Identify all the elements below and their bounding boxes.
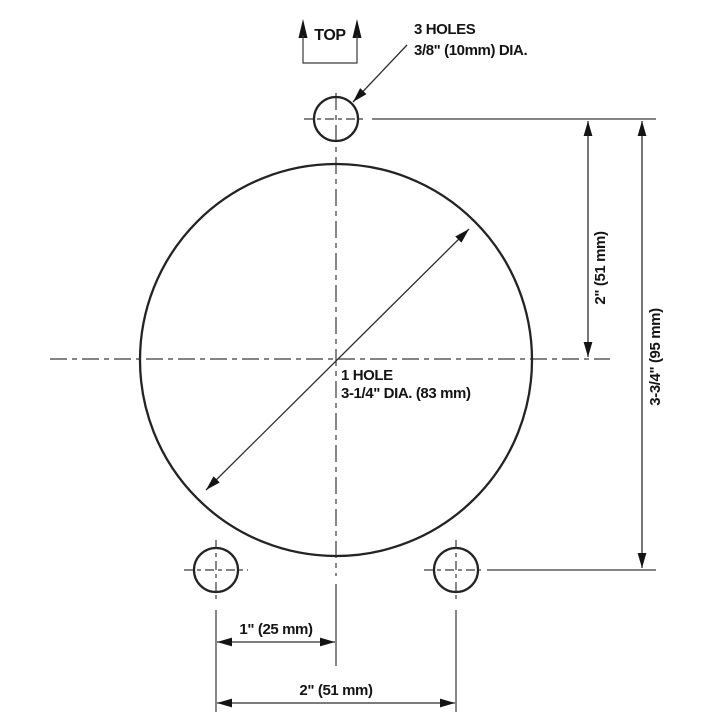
small-holes-label-line1: 3 HOLES bbox=[414, 21, 476, 38]
dim-label-2in-horizontal: 2" (51 mm) bbox=[299, 682, 373, 699]
large-hole-label-line1: 1 HOLE bbox=[341, 367, 393, 384]
dim-label-1in-horizontal: 1" (25 mm) bbox=[239, 621, 313, 638]
small-holes-label-line2: 3/8" (10mm) DIA. bbox=[414, 42, 527, 59]
top-label: TOP bbox=[314, 27, 346, 44]
large-hole-annotation: 1 HOLE 3-1/4" DIA. (83 mm) bbox=[341, 367, 471, 402]
leader-arrow bbox=[353, 45, 407, 102]
dim-label-2in-vertical: 2" (51 mm) bbox=[592, 231, 609, 305]
drawing-canvas: TOP 3 HOLES 3/8" (10mm) DIA. 1 HOLE 3-1/… bbox=[0, 0, 720, 720]
hole-template-drawing: TOP 3 HOLES 3/8" (10mm) DIA. 1 HOLE 3-1/… bbox=[0, 0, 720, 720]
small-holes-annotation: 3 HOLES 3/8" (10mm) DIA. bbox=[353, 21, 527, 102]
large-hole-label-line2: 3-1/4" DIA. (83 mm) bbox=[341, 385, 471, 402]
top-orientation-marker: TOP bbox=[299, 19, 362, 63]
dim-label-3-3-4in-vertical: 3-3/4" (95 mm) bbox=[647, 308, 664, 406]
